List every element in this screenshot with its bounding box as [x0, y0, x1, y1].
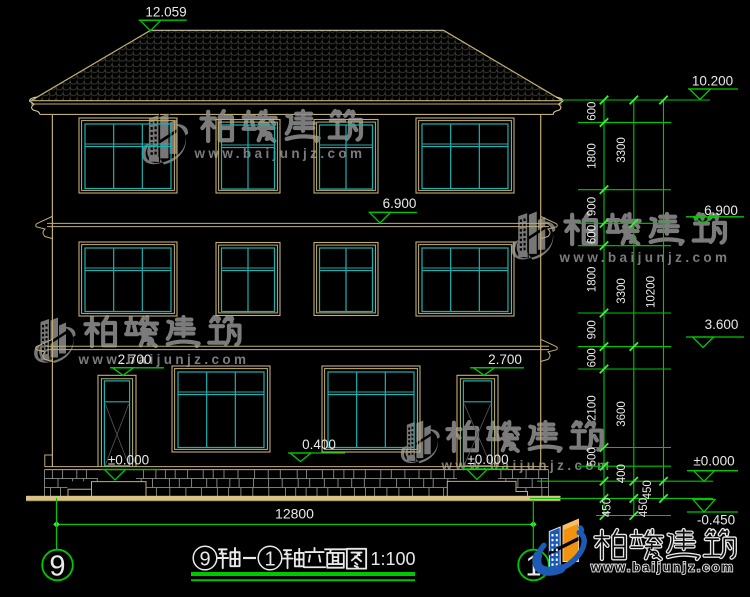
- svg-text:500: 500: [587, 447, 599, 466]
- svg-text:1:100: 1:100: [370, 549, 415, 569]
- svg-text:±0.000: ±0.000: [693, 454, 734, 469]
- svg-text:6.900: 6.900: [383, 196, 417, 211]
- svg-text:10.200: 10.200: [692, 74, 733, 89]
- svg-text:0.400: 0.400: [302, 437, 336, 452]
- svg-text:-0.450: -0.450: [697, 513, 735, 528]
- svg-text:3300: 3300: [616, 278, 628, 304]
- svg-text:2.700: 2.700: [118, 352, 152, 367]
- svg-text:2100: 2100: [587, 395, 599, 421]
- svg-text:450: 450: [638, 498, 650, 517]
- svg-text:900: 900: [587, 197, 599, 216]
- svg-text:1: 1: [264, 549, 275, 571]
- svg-text:3300: 3300: [616, 137, 628, 163]
- svg-text:600: 600: [587, 225, 599, 244]
- svg-text:www.baijunjz.com: www.baijunjz.com: [590, 560, 735, 575]
- svg-text:400: 400: [616, 464, 628, 483]
- svg-text:450: 450: [602, 498, 614, 517]
- svg-text:www.baijunjz.com: www.baijunjz.com: [78, 352, 250, 367]
- svg-text:±0.000: ±0.000: [108, 453, 149, 468]
- svg-text:±0.000: ±0.000: [467, 452, 508, 467]
- svg-text:600: 600: [587, 348, 599, 367]
- svg-text:1800: 1800: [587, 143, 599, 169]
- svg-text:900: 900: [587, 320, 599, 339]
- svg-text:www.baijunjz.com: www.baijunjz.com: [559, 250, 731, 265]
- svg-text:450: 450: [642, 480, 654, 499]
- svg-text:12800: 12800: [275, 506, 314, 522]
- svg-text:3.600: 3.600: [705, 317, 739, 332]
- svg-text:9: 9: [199, 549, 210, 571]
- svg-text:1800: 1800: [587, 267, 599, 293]
- svg-text:12.059: 12.059: [145, 5, 186, 20]
- svg-text:600: 600: [587, 102, 599, 121]
- svg-text:3600: 3600: [616, 401, 628, 427]
- svg-text:9: 9: [49, 551, 65, 583]
- svg-text:10200: 10200: [646, 276, 658, 308]
- svg-text:6.900: 6.900: [704, 203, 738, 218]
- svg-text:2.700: 2.700: [488, 352, 522, 367]
